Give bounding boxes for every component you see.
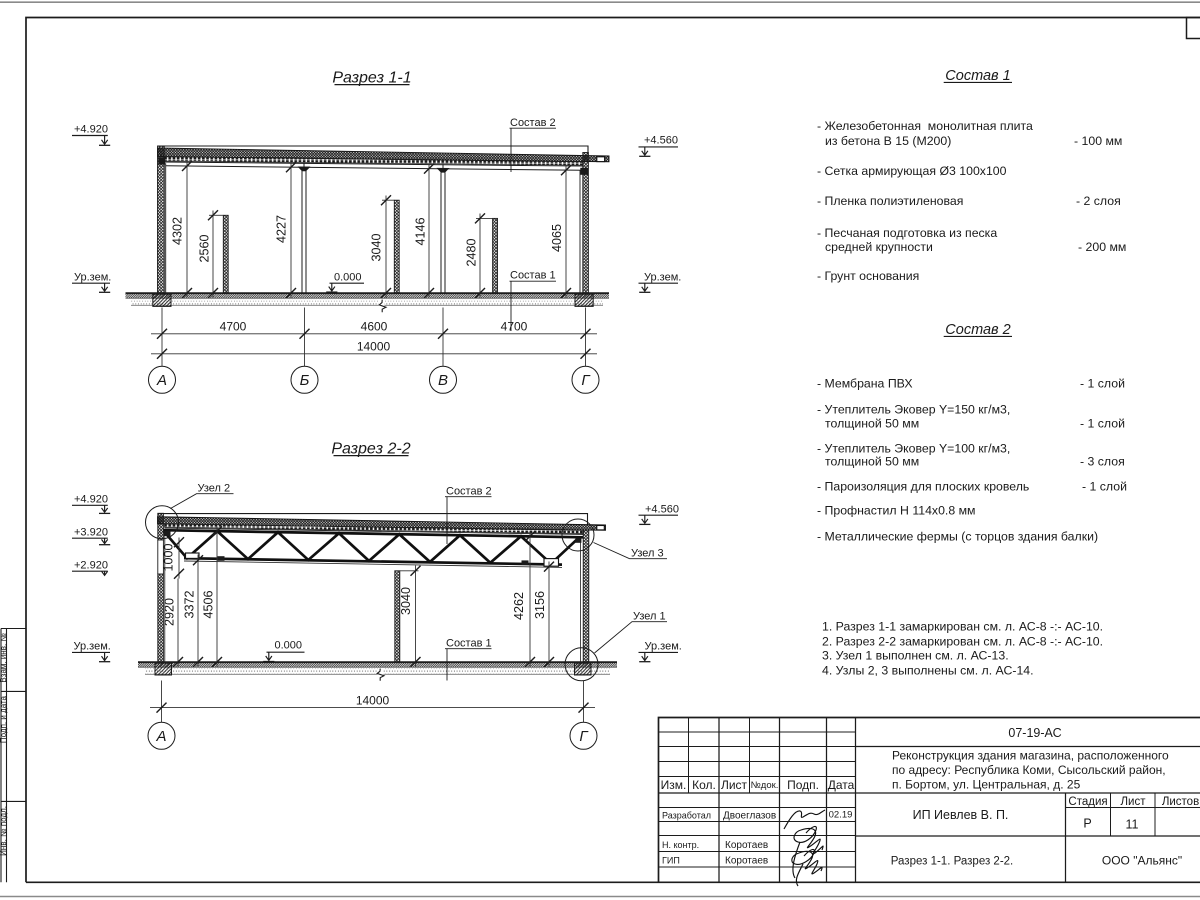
svg-text:Н. контр.: Н. контр. xyxy=(662,840,699,850)
svg-text:Инв. № подл.: Инв. № подл. xyxy=(0,806,8,856)
svg-text:Листов: Листов xyxy=(1162,796,1199,808)
svg-text:Подп. и дата: Подп. и дата xyxy=(0,695,8,743)
svg-text:- Мембрана ПВХ: - Мембрана ПВХ xyxy=(817,377,913,391)
svg-text:Стадия: Стадия xyxy=(1068,796,1107,808)
svg-text:2480: 2480 xyxy=(465,238,479,266)
svg-text:- Металлические фермы (с торцо: - Металлические фермы (с торцов здания б… xyxy=(817,530,1098,544)
svg-text:Коротаев: Коротаев xyxy=(725,856,768,867)
svg-text:№док.: №док. xyxy=(751,780,779,791)
svg-text:1. Разрез 1-1 замаркирован см.: 1. Разрез 1-1 замаркирован см. л. АС-8 -… xyxy=(822,619,1103,633)
svg-text:Лист: Лист xyxy=(721,778,748,792)
svg-text:Узел 1: Узел 1 xyxy=(633,611,666,623)
svg-text:- Пароизоляция для плоских кро: - Пароизоляция для плоских кровель xyxy=(817,480,1029,494)
svg-text:ГИП: ГИП xyxy=(662,856,680,866)
svg-text:0.000: 0.000 xyxy=(275,640,303,652)
svg-text:Разрез 1-1. Разрез 2-2.: Разрез 1-1. Разрез 2-2. xyxy=(891,856,1014,868)
svg-text:4700: 4700 xyxy=(220,320,247,334)
svg-text:2920: 2920 xyxy=(163,598,177,626)
svg-text:Состав 1: Состав 1 xyxy=(945,68,1010,84)
svg-text:из бетона В 15 (М200): из бетона В 15 (М200) xyxy=(825,134,951,148)
svg-text:14000: 14000 xyxy=(356,694,390,708)
svg-text:1000: 1000 xyxy=(162,543,176,571)
svg-text:4146: 4146 xyxy=(414,217,428,245)
svg-text:средней крупности: средней крупности xyxy=(825,240,933,254)
svg-text:Ур.зем.: Ур.зем. xyxy=(645,641,682,653)
svg-text:А: А xyxy=(156,372,167,389)
svg-text:- 100 мм: - 100 мм xyxy=(1074,134,1122,148)
svg-text:4065: 4065 xyxy=(550,224,564,252)
svg-text:- 3 слоя: - 3 слоя xyxy=(1080,455,1125,469)
svg-text:Изм.: Изм. xyxy=(661,778,687,792)
svg-text:Разработал: Разработал xyxy=(662,811,711,821)
svg-text:- Железобетонная монолитная п: - Железобетонная монолитная плита xyxy=(817,119,1033,133)
svg-text:- Грунт основания: - Грунт основания xyxy=(817,269,919,283)
svg-text:07-19-АС: 07-19-АС xyxy=(1008,726,1061,740)
svg-text:+4.920: +4.920 xyxy=(74,124,108,136)
svg-text:3156: 3156 xyxy=(533,591,547,619)
svg-text:по адресу: Республика Коми, Сы: по адресу: Республика Коми, Сысольский р… xyxy=(892,763,1166,777)
svg-text:+4.560: +4.560 xyxy=(645,504,679,516)
svg-text:Ур.зем.: Ур.зем. xyxy=(644,272,681,284)
svg-text:Кол.: Кол. xyxy=(692,778,716,792)
svg-text:4. Узлы 2, 3 выполнены см. л.: 4. Узлы 2, 3 выполнены см. л. АС-14. xyxy=(822,663,1034,677)
svg-text:- 2 слоя: - 2 слоя xyxy=(1076,194,1121,208)
svg-text:Реконструкция здания магазина,: Реконструкция здания магазина, расположе… xyxy=(892,749,1169,763)
svg-text:3040: 3040 xyxy=(370,233,384,261)
svg-text:4302: 4302 xyxy=(171,217,185,245)
svg-text:4262: 4262 xyxy=(512,592,526,620)
svg-text:Состав 1: Состав 1 xyxy=(446,638,492,650)
svg-text:- Утеплитель Эковер Y=150 кг/м: - Утеплитель Эковер Y=150 кг/м3, xyxy=(817,403,1010,417)
svg-text:11: 11 xyxy=(1126,818,1139,832)
svg-text:- Сетка армирующая Ø3 100х100: - Сетка армирующая Ø3 100х100 xyxy=(817,164,1007,178)
svg-text:- 1 слой: - 1 слой xyxy=(1082,480,1127,494)
svg-text:Лист: Лист xyxy=(1121,796,1147,808)
svg-text:0.000: 0.000 xyxy=(334,272,362,284)
svg-text:Р: Р xyxy=(1083,817,1091,831)
svg-text:02.19: 02.19 xyxy=(829,810,853,821)
svg-text:2. Разрез 2-2 замаркирован см.: 2. Разрез 2-2 замаркирован см. л. АС-8 -… xyxy=(822,634,1103,648)
svg-text:4600: 4600 xyxy=(361,320,388,334)
svg-text:Подп.: Подп. xyxy=(787,778,819,792)
svg-text:2560: 2560 xyxy=(198,234,212,262)
svg-text:3. Узел 1 выполнен см. л. АС-1: 3. Узел 1 выполнен см. л. АС-13. xyxy=(822,648,1009,662)
svg-text:толщиной 50 мм: толщиной 50 мм xyxy=(825,455,919,469)
svg-text:+4.920: +4.920 xyxy=(74,494,108,506)
svg-text:Двоеглазов: Двоеглазов xyxy=(723,811,776,822)
svg-text:- 1 слой: - 1 слой xyxy=(1080,377,1125,391)
svg-text:Разрез 2-2: Разрез 2-2 xyxy=(331,441,410,458)
svg-text:Дата: Дата xyxy=(828,778,855,792)
svg-text:14000: 14000 xyxy=(357,340,391,354)
svg-text:Состав 2: Состав 2 xyxy=(945,322,1010,338)
svg-text:Узел 2: Узел 2 xyxy=(198,483,231,495)
svg-text:- Утеплитель Эковер Y=100 кг/м: - Утеплитель Эковер Y=100 кг/м3, xyxy=(817,442,1010,456)
svg-text:- Пленка полиэтиленовая: - Пленка полиэтиленовая xyxy=(817,194,963,208)
svg-text:Состав 2: Состав 2 xyxy=(510,117,556,129)
svg-text:Узел 3: Узел 3 xyxy=(631,548,664,560)
svg-text:- Песчаная подготовка из песка: - Песчаная подготовка из песка xyxy=(817,226,997,240)
svg-text:4227: 4227 xyxy=(275,215,289,243)
svg-text:3040: 3040 xyxy=(399,587,413,615)
svg-text:Коротаев: Коротаев xyxy=(725,840,768,851)
svg-text:+4.560: +4.560 xyxy=(644,135,678,147)
svg-text:- 200 мм: - 200 мм xyxy=(1078,240,1126,254)
svg-text:3372: 3372 xyxy=(183,590,197,618)
svg-text:А: А xyxy=(155,728,166,745)
svg-text:ООО "Альянс": ООО "Альянс" xyxy=(1102,854,1182,868)
svg-text:Ур.зем.: Ур.зем. xyxy=(74,272,111,284)
svg-text:+2.920: +2.920 xyxy=(74,560,108,572)
svg-text:- Профнастил Н 114х0.8 мм: - Профнастил Н 114х0.8 мм xyxy=(817,504,975,518)
svg-text:4700: 4700 xyxy=(501,320,528,334)
svg-text:В: В xyxy=(438,372,448,389)
svg-text:Ур.зем.: Ур.зем. xyxy=(74,641,111,653)
svg-text:ИП Иевлев В. П.: ИП Иевлев В. П. xyxy=(913,808,1009,822)
svg-text:- 1 слой: - 1 слой xyxy=(1080,417,1125,431)
svg-text:+3.920: +3.920 xyxy=(74,527,108,539)
svg-text:Состав 1: Состав 1 xyxy=(510,270,556,282)
svg-text:4506: 4506 xyxy=(202,590,216,618)
svg-text:Состав 2: Состав 2 xyxy=(446,486,492,498)
svg-text:п. Бортом, ул. Центральная, д.: п. Бортом, ул. Центральная, д. 25 xyxy=(892,778,1081,792)
svg-text:толщиной 50 мм: толщиной 50 мм xyxy=(825,417,919,431)
svg-text:Взам. инв. №: Взам. инв. № xyxy=(0,633,8,683)
svg-text:Б: Б xyxy=(300,372,310,389)
svg-text:Разрез 1-1: Разрез 1-1 xyxy=(332,70,411,87)
